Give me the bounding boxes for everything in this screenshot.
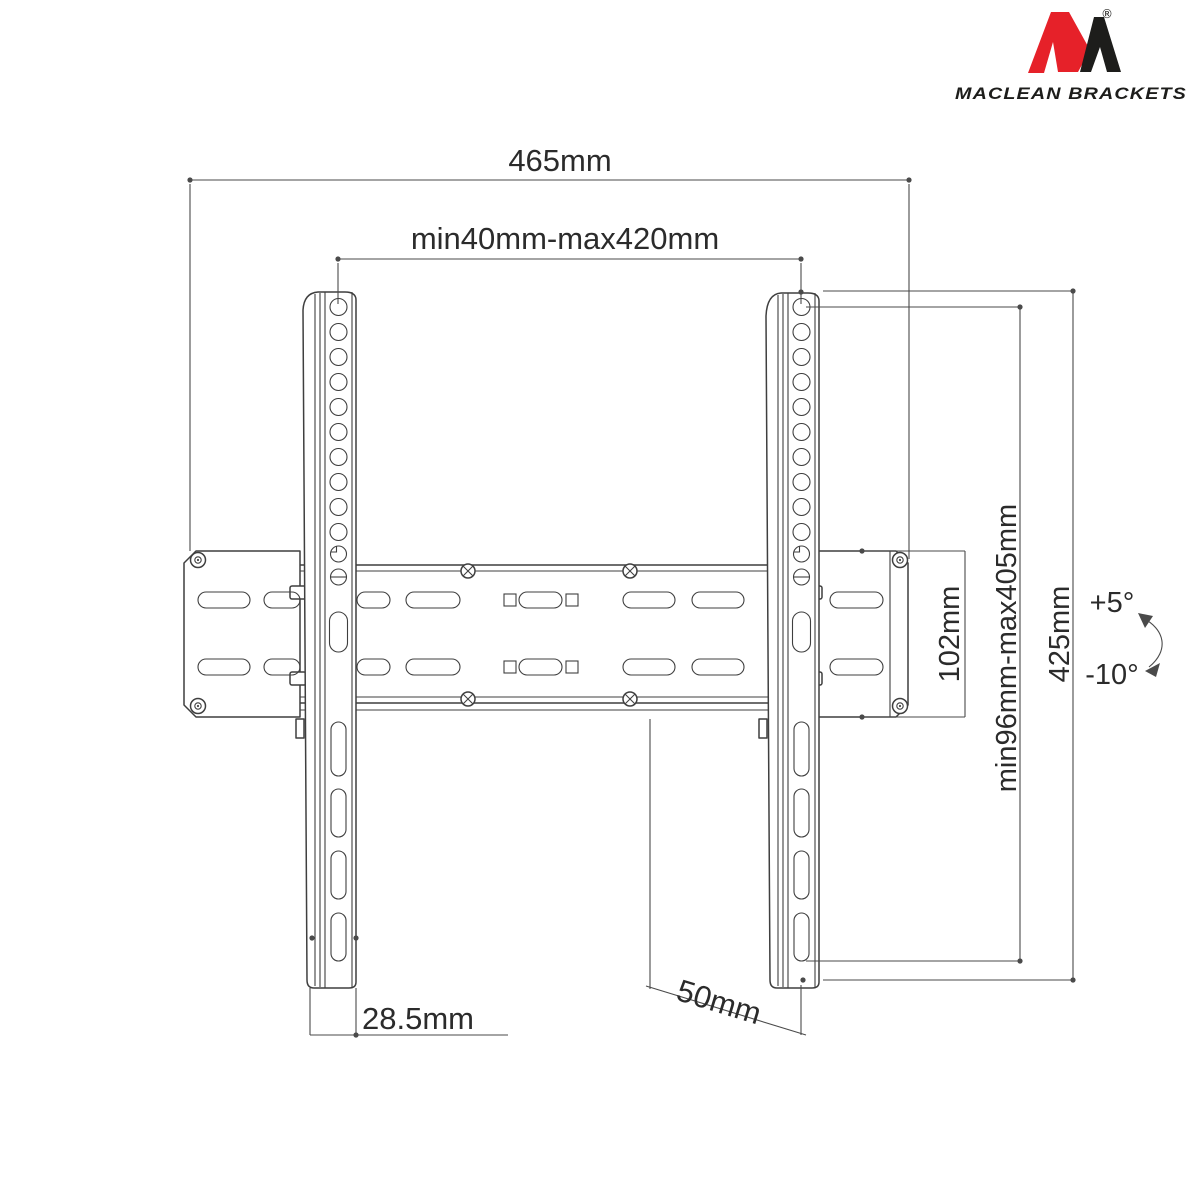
plate-slot	[830, 592, 883, 608]
logo-mark-red	[1028, 12, 1090, 73]
left-rail	[296, 292, 356, 988]
plate-square-hole	[566, 594, 578, 606]
dimension-point	[1017, 958, 1022, 963]
plate-slot	[198, 592, 250, 608]
dim-label-horizontal-holes: min40mm-max420mm	[411, 221, 719, 256]
dim-label-overall-width: 465mm	[508, 143, 611, 178]
dimension-point	[353, 935, 358, 940]
rail-tab	[759, 719, 767, 738]
dim-label-depth: 50mm	[673, 973, 766, 1032]
cap-screw-center	[197, 705, 199, 707]
dimension-point	[798, 289, 803, 294]
bolt	[290, 672, 306, 685]
dimension-point	[353, 1032, 358, 1037]
dimension-point	[1017, 304, 1022, 309]
plate-slot	[623, 592, 675, 608]
plate-left-end-cap	[184, 551, 300, 717]
maclean-logo: ® MACLEAN BRACKETS	[955, 7, 1187, 103]
rail-tab	[296, 719, 304, 738]
plate-right-end-cap	[808, 551, 908, 717]
plate-square-hole	[504, 594, 516, 606]
cap-bolts	[290, 586, 822, 685]
dim-label-vertical-holes: min96mm-max405mm	[991, 504, 1023, 792]
dimension-point	[1070, 288, 1075, 293]
plate-slot	[623, 659, 675, 675]
tilt-arrow-up-icon	[1138, 613, 1153, 628]
plate-slot	[692, 592, 744, 608]
dim-label-plate-height: 102mm	[934, 586, 966, 683]
plate-slot	[519, 659, 562, 675]
dim-label-rail-width: 28.5mm	[362, 1001, 474, 1036]
plate-slot	[406, 659, 460, 675]
dimension-point	[309, 935, 314, 940]
plate-slot	[198, 659, 250, 675]
dimension-point	[798, 256, 803, 261]
plate-slot	[830, 659, 883, 675]
dimension-point	[187, 177, 192, 182]
dimension-point	[859, 548, 864, 553]
dimension-point	[859, 714, 864, 719]
cap-screw-center	[899, 559, 901, 561]
plate-slot	[357, 592, 390, 608]
plate-square-hole	[504, 661, 516, 673]
plate-slot	[692, 659, 744, 675]
dimension-point	[1070, 977, 1075, 982]
dimension-point	[800, 977, 805, 982]
brand-wordmark: MACLEAN BRACKETS	[955, 84, 1187, 103]
dim-label-bracket-height: 425mm	[1044, 586, 1076, 683]
plate-square-hole	[566, 661, 578, 673]
cap-screw-center	[899, 705, 901, 707]
plate-slot	[357, 659, 390, 675]
tilt-up-label: +5°	[1090, 587, 1135, 619]
right-rail	[759, 293, 819, 988]
tilt-down-label: -10°	[1085, 659, 1139, 691]
registered-trademark-icon: ®	[1101, 7, 1113, 21]
technical-drawing: ® MACLEAN BRACKETS	[0, 0, 1200, 1200]
plate-slot	[519, 592, 562, 608]
plate-slot	[406, 592, 460, 608]
tilt-arrow-down-icon	[1145, 663, 1160, 677]
dimension-point	[906, 177, 911, 182]
dimension-point	[335, 256, 340, 261]
cap-screw-center	[197, 559, 199, 561]
